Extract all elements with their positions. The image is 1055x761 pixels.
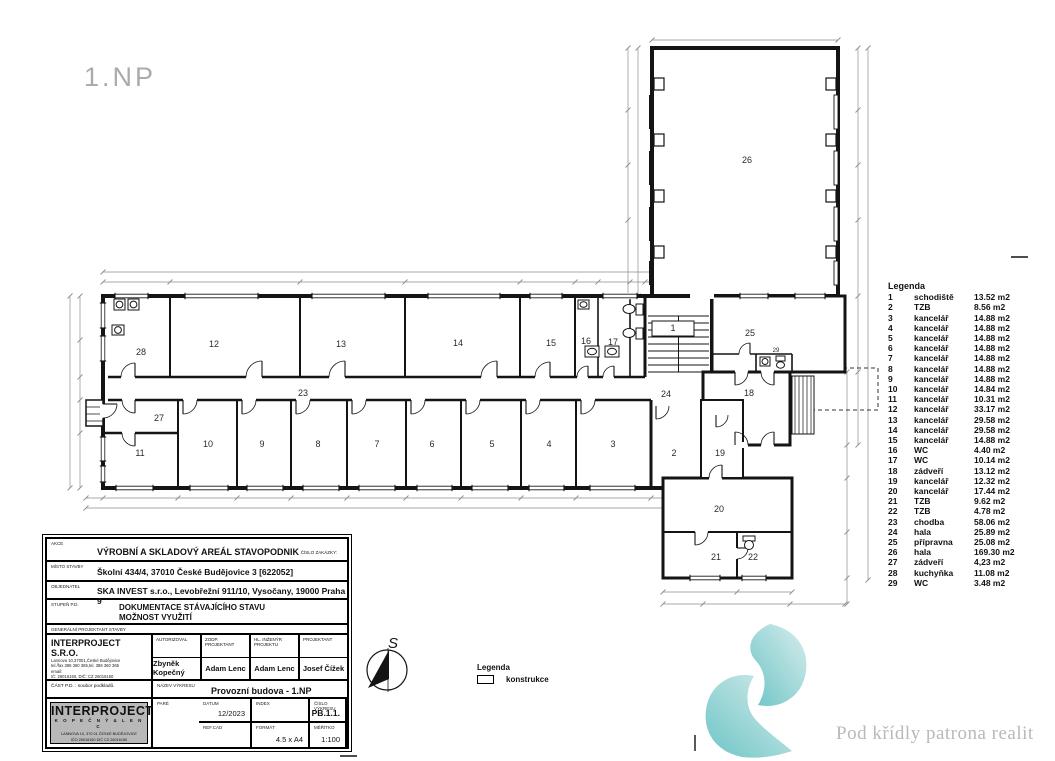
room-number: 19 — [888, 476, 914, 486]
room-area: 13.52 m2 — [974, 292, 1038, 302]
company-logo: INTERPROJECT K O P E Č N Ý & L E N C LAN… — [47, 699, 153, 747]
title-block: AKCE VÝROBNÍ A SKLADOVÝ AREÁL STAVOPODNI… — [42, 534, 352, 752]
drawing-number-cell: ČÍSLO VÝKRESU PB.1.1. — [310, 699, 347, 723]
signature-role-label: HL. INŽENÝR PROJEKTU — [251, 635, 298, 658]
room-name: kancelář — [914, 343, 974, 353]
room-name: kancelář — [914, 404, 974, 414]
room-area: 11.08 m2 — [974, 568, 1038, 578]
room-number: 11 — [888, 394, 914, 404]
room-name: kancelář — [914, 435, 974, 445]
room-name: kancelář — [914, 384, 974, 394]
legend-row: 25přípravna25.08 m2 — [888, 537, 1038, 547]
legend-row: 21TZB9.62 m2 — [888, 496, 1038, 506]
legend-row: 3kancelář14.88 m2 — [888, 313, 1038, 323]
room-area: 14.88 m2 — [974, 313, 1038, 323]
room-name: kancelář — [914, 415, 974, 425]
room-label: 20 — [714, 504, 724, 514]
room-legend-title: Legenda — [888, 281, 1038, 291]
room-area: 12.32 m2 — [974, 476, 1038, 486]
signature-columns: AUTORIZOVALZbyněk KopečnýZODP. PROJEKTAN… — [153, 635, 347, 679]
akce-label: AKCE — [51, 541, 63, 546]
legend-row: 14kancelář29.58 m2 — [888, 425, 1038, 435]
room-name: TZB — [914, 506, 974, 516]
room-label: 15 — [546, 338, 556, 348]
format-value: 4.5 x A4 — [276, 735, 303, 744]
legend-row: 18zádveří13.12 m2 — [888, 466, 1038, 476]
room-area: 9.62 m2 — [974, 496, 1038, 506]
signature-column: ZODP. PROJEKTANTAdam Lenc — [202, 635, 251, 679]
room-number: 14 — [888, 425, 914, 435]
room-area: 14.88 m2 — [974, 323, 1038, 333]
room-name: chodba — [914, 517, 974, 527]
room-number: 25 — [888, 537, 914, 547]
room-name: kancelář — [914, 333, 974, 343]
room-label: 14 — [453, 338, 463, 348]
stage-line2: MOŽNOST VYUŽITÍ — [119, 613, 192, 622]
walls — [86, 48, 845, 578]
project-name: VÝROBNÍ A SKLADOVÝ AREÁL STAVOPODNIK — [97, 547, 299, 557]
room-area: 10.31 m2 — [974, 394, 1038, 404]
construction-legend: Legenda konstrukce — [477, 663, 549, 684]
legend-row: 17WC10.14 m2 — [888, 455, 1038, 465]
legend-row: 5kancelář14.88 m2 — [888, 333, 1038, 343]
room-label: 2 — [671, 448, 676, 458]
datum-cell: DATUM 12/2023 — [199, 699, 252, 723]
room-name: kancelář — [914, 476, 974, 486]
legend-row: 4kancelář14.88 m2 — [888, 323, 1038, 333]
room-legend: Legenda 1schodiště13.52 m22TZB8.56 m23ka… — [888, 281, 1038, 588]
room-label: 9 — [259, 439, 264, 449]
room-number: 2 — [888, 302, 914, 312]
legend-row: 27zádveří4,23 m2 — [888, 557, 1038, 567]
logo-line2: K O P E Č N Ý & L E N C — [51, 718, 147, 730]
signature-person: Adam Lenc — [251, 658, 298, 679]
room-area: 4,23 m2 — [974, 557, 1038, 567]
scale-value: 1:100 — [321, 735, 340, 744]
room-label: 29 — [773, 348, 780, 354]
room-number: 13 — [888, 415, 914, 425]
room-number: 22 — [888, 506, 914, 516]
room-number: 26 — [888, 547, 914, 557]
room-area: 14.88 m2 — [974, 333, 1038, 343]
signature-column: PROJEKTANTJosef Čížek — [300, 635, 347, 679]
legend-row: 2TZB8.56 m2 — [888, 302, 1038, 312]
room-name: kancelář — [914, 425, 974, 435]
room-area: 33.17 m2 — [974, 404, 1038, 414]
legend-row: 12kancelář33.17 m2 — [888, 404, 1038, 414]
room-number: 1 — [888, 292, 914, 302]
stage-label: STUPEŇ P.D. — [51, 602, 79, 607]
signature-role-label: ZODP. PROJEKTANT — [202, 635, 249, 658]
room-name: kancelář — [914, 394, 974, 404]
company-ic: IČ: 26016150, DIČ: CZ 26016150 — [51, 674, 147, 679]
room-label: 27 — [154, 413, 164, 423]
room-name: kancelář — [914, 374, 974, 384]
client-label: OBJEDNATEL — [51, 584, 80, 589]
room-area: 17.44 m2 — [974, 486, 1038, 496]
room-name: kancelář — [914, 486, 974, 496]
room-number: 20 — [888, 486, 914, 496]
legend-row: 19kancelář12.32 m2 — [888, 476, 1038, 486]
room-label: 7 — [374, 439, 379, 449]
signature-role-label: AUTORIZOVAL — [153, 635, 200, 658]
room-label: 24 — [661, 389, 671, 399]
room-number: 29 — [888, 578, 914, 588]
room-number: 8 — [888, 364, 914, 374]
room-name: zádveří — [914, 466, 974, 476]
signature-person: Zbyněk Kopečný — [153, 658, 200, 679]
room-area: 25.08 m2 — [974, 537, 1038, 547]
room-number: 5 — [888, 333, 914, 343]
room-label: 17 — [608, 337, 618, 347]
room-label: 11 — [135, 448, 144, 458]
room-label: 8 — [315, 439, 320, 449]
legend-row: 11kancelář10.31 m2 — [888, 394, 1038, 404]
signature-person: Adam Lenc — [202, 658, 249, 679]
room-number: 3 — [888, 313, 914, 323]
room-label: 28 — [136, 347, 146, 357]
room-name: kancelář — [914, 353, 974, 363]
legend-row: 7kancelář14.88 m2 — [888, 353, 1038, 363]
general-designer-label: GENERÁLNÍ PROJEKTANT STAVBY — [51, 627, 126, 632]
logo-line1: INTERPROJECT — [51, 705, 147, 718]
drawing-title: 1.NP — [84, 62, 156, 93]
room-number: 28 — [888, 568, 914, 578]
room-name: WC — [914, 455, 974, 465]
room-number: 9 — [888, 374, 914, 384]
legend-row: 15kancelář14.88 m2 — [888, 435, 1038, 445]
room-name: TZB — [914, 302, 974, 312]
room-label: 4 — [546, 439, 551, 449]
pare-cell: PARÉ — [153, 699, 199, 747]
drawing-name: Provozní budova - 1.NP — [211, 686, 312, 696]
room-area: 4.78 m2 — [974, 506, 1038, 516]
svg-text:S: S — [388, 635, 398, 652]
construction-item-label: konstrukce — [506, 675, 549, 684]
room-label: 26 — [742, 155, 752, 165]
legend-row: 26hala169.30 m2 — [888, 547, 1038, 557]
legend-row: 24hala25.89 m2 — [888, 527, 1038, 537]
room-area: 8.56 m2 — [974, 302, 1038, 312]
signature-role-label: PROJEKTANT — [300, 635, 347, 658]
legend-row: 16WC4.40 m2 — [888, 445, 1038, 455]
room-area: 14.88 m2 — [974, 364, 1038, 374]
legend-row: 22TZB4.78 m2 — [888, 506, 1038, 516]
room-name: kancelář — [914, 364, 974, 374]
north-arrow-icon: S — [367, 635, 407, 692]
room-area: 10.14 m2 — [974, 455, 1038, 465]
room-label: 10 — [203, 439, 213, 449]
signature-column: HL. INŽENÝR PROJEKTUAdam Lenc — [251, 635, 300, 679]
room-number: 18 — [888, 466, 914, 476]
room-label: 25 — [745, 328, 755, 338]
signature-person: Josef Čížek — [300, 658, 347, 679]
room-area: 14.88 m2 — [974, 374, 1038, 384]
company-name: INTERPROJECT S.R.O. — [51, 638, 147, 658]
datum-value: 12/2023 — [218, 709, 245, 718]
room-area: 58.06 m2 — [974, 517, 1038, 527]
room-name: WC — [914, 578, 974, 588]
room-label: 16 — [581, 336, 591, 346]
room-name: schodiště — [914, 292, 974, 302]
room-name: zádveří — [914, 557, 974, 567]
legend-row: 23chodba58.06 m2 — [888, 517, 1038, 527]
room-label: 23 — [298, 388, 308, 398]
index-cell: INDEX — [252, 699, 310, 723]
company-cell: INTERPROJECT S.R.O. Lannova 10,37001,Čes… — [47, 635, 153, 679]
construction-legend-title: Legenda — [477, 663, 549, 672]
room-area: 29.58 m2 — [974, 415, 1038, 425]
drawing-sheet: { "page": { "title": "1.NP" }, "legend":… — [0, 0, 1055, 761]
room-label: 21 — [711, 552, 721, 562]
room-number: 27 — [888, 557, 914, 567]
room-area: 3.48 m2 — [974, 578, 1038, 588]
room-area: 4.40 m2 — [974, 445, 1038, 455]
site-label: MÍSTO STAVBY — [51, 564, 84, 569]
format-cell: FORMÁT 4.5 x A4 — [252, 723, 310, 747]
order-number-label: ČÍSLO ZAKÁZKY: — [301, 550, 337, 555]
drawing-number-value: PB.1.1. — [312, 708, 340, 718]
drawing-name-label: NÁZEV VÝKRESU — [157, 683, 195, 688]
construction-symbol — [477, 675, 494, 684]
room-name: kancelář — [914, 323, 974, 333]
room-number: 6 — [888, 343, 914, 353]
legend-row: 10kancelář14.84 m2 — [888, 384, 1038, 394]
room-name: hala — [914, 547, 974, 557]
room-label: 1 — [670, 323, 675, 333]
room-number: 10 — [888, 384, 914, 394]
logo-line3: LANNOVA 10, 370 01 ČESKÉ BUDĚJOVICE — [51, 732, 147, 737]
room-number: 24 — [888, 527, 914, 537]
room-label: 18 — [744, 388, 754, 398]
logo-line4: IČO 26016150 DIČ CZ 26016150 — [51, 738, 147, 743]
room-label: 19 — [715, 448, 725, 458]
room-legend-rows: 1schodiště13.52 m22TZB8.56 m23kancelář14… — [888, 292, 1038, 588]
room-area: 25.89 m2 — [974, 527, 1038, 537]
legend-row: 8kancelář14.88 m2 — [888, 364, 1038, 374]
refcad-cell: REF.CAD — [199, 723, 252, 747]
room-name: kuchyňka — [914, 568, 974, 578]
room-label: 13 — [336, 339, 346, 349]
signature-column: AUTORIZOVALZbyněk Kopečný — [153, 635, 202, 679]
room-label: 12 — [209, 339, 219, 349]
room-number: 7 — [888, 353, 914, 363]
room-number: 16 — [888, 445, 914, 455]
room-name: WC — [914, 445, 974, 455]
room-area: 14.88 m2 — [974, 353, 1038, 363]
room-number: 4 — [888, 323, 914, 333]
room-area: 14.84 m2 — [974, 384, 1038, 394]
room-area: 169.30 m2 — [974, 547, 1038, 557]
room-area: 13.12 m2 — [974, 466, 1038, 476]
part-pd: ČÁST P.D. : soubor podkladů. — [47, 681, 153, 697]
room-label: 3 — [610, 439, 615, 449]
legend-row: 13kancelář29.58 m2 — [888, 415, 1038, 425]
room-label: 6 — [429, 439, 434, 449]
room-label: 22 — [748, 552, 758, 562]
room-name: kancelář — [914, 313, 974, 323]
watermark-logo — [706, 624, 807, 758]
room-area: 29.58 m2 — [974, 425, 1038, 435]
legend-row: 6kancelář14.88 m2 — [888, 343, 1038, 353]
legend-row: 1schodiště13.52 m2 — [888, 292, 1038, 302]
legend-row: 28kuchyňka11.08 m2 — [888, 568, 1038, 578]
room-number: 21 — [888, 496, 914, 506]
room-number: 23 — [888, 517, 914, 527]
site-address: Školní 434/4, 37010 České Budějovice 3 [… — [97, 567, 293, 577]
legend-row: 29WC3.48 m2 — [888, 578, 1038, 588]
legend-row: 20kancelář17.44 m2 — [888, 486, 1038, 496]
stage-line1: DOKUMENTACE STÁVAJÍCÍHO STAVU — [119, 603, 265, 612]
room-number: 12 — [888, 404, 914, 414]
room-area: 14.88 m2 — [974, 343, 1038, 353]
room-name: TZB — [914, 496, 974, 506]
legend-row: 9kancelář14.88 m2 — [888, 374, 1038, 384]
room-number: 15 — [888, 435, 914, 445]
room-name: hala — [914, 527, 974, 537]
room-area: 14.88 m2 — [974, 435, 1038, 445]
room-name: přípravna — [914, 537, 974, 547]
watermark-slogan: Pod křídly patrona realit — [836, 723, 1034, 745]
room-label: 5 — [489, 439, 494, 449]
room-number: 17 — [888, 455, 914, 465]
scale-cell: MĚŘÍTKO 1:100 — [310, 723, 347, 747]
